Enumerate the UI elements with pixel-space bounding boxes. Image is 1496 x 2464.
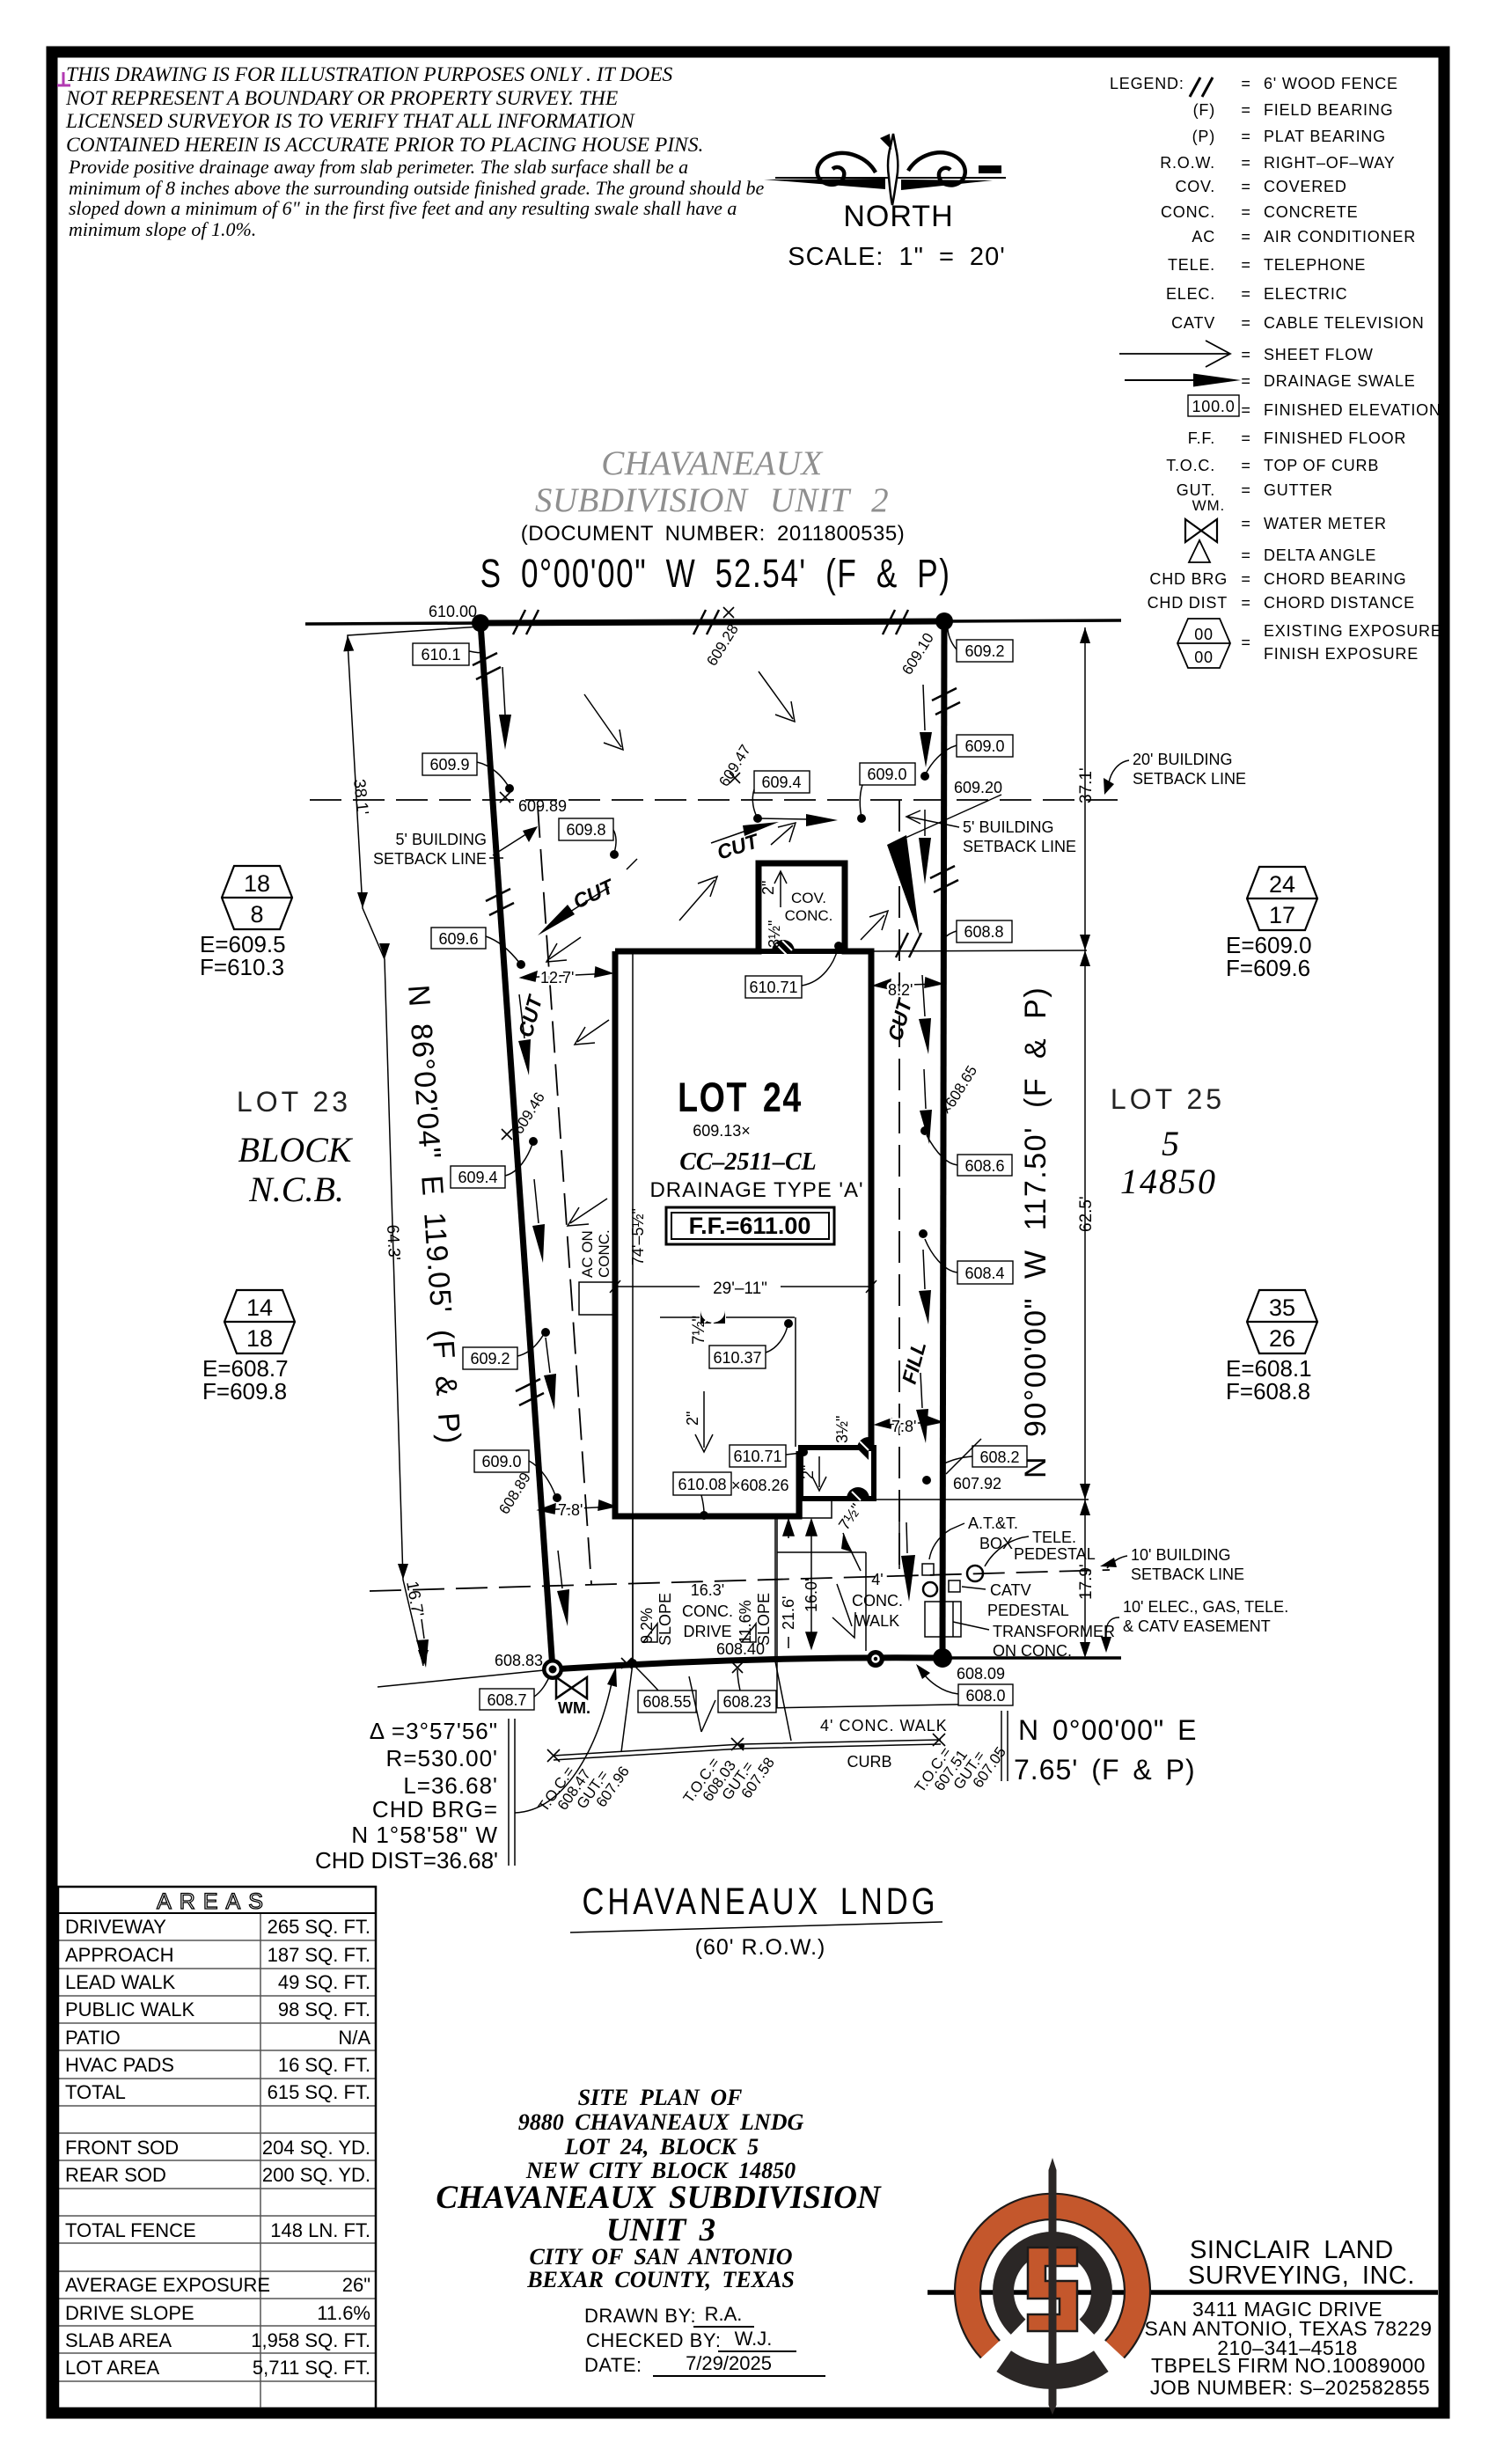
svg-text:BLOCK: BLOCK xyxy=(238,1130,354,1170)
svg-text:SLOPE: SLOPE xyxy=(656,1593,674,1646)
svg-text:2": 2" xyxy=(759,881,777,895)
svg-text:5' BUILDING: 5' BUILDING xyxy=(396,831,487,848)
svg-text:N/A: N/A xyxy=(338,2027,370,2049)
svg-text:L=36.68': L=36.68' xyxy=(403,1772,498,1799)
svg-text:PEDESTAL: PEDESTAL xyxy=(987,1602,1069,1619)
svg-text:PATIO: PATIO xyxy=(65,2027,121,2049)
svg-text:CATV: CATV xyxy=(990,1581,1031,1599)
svg-text:204 SQ. YD.: 204 SQ. YD. xyxy=(262,2137,370,2159)
svg-text:CHD DIST=36.68': CHD DIST=36.68' xyxy=(315,1847,498,1874)
svg-text:LOT 25: LOT 25 xyxy=(1111,1083,1225,1115)
svg-text:14850: 14850 xyxy=(1120,1162,1217,1201)
svg-text:CURB: CURB xyxy=(847,1753,891,1771)
svg-text:609.89: 609.89 xyxy=(518,797,567,815)
svg-text:187 SQ. FT.: 187 SQ. FT. xyxy=(268,1944,370,1966)
svg-text:CHAVANEAUX LNDG: CHAVANEAUX LNDG xyxy=(583,1881,939,1922)
svg-text:608.4: 608.4 xyxy=(964,1265,1004,1282)
svg-text:CHORD DISTANCE: CHORD DISTANCE xyxy=(1264,594,1415,612)
svg-text:TELE.: TELE. xyxy=(1168,256,1215,274)
svg-text:609.13×: 609.13× xyxy=(693,1122,751,1140)
svg-text:R.O.W.: R.O.W. xyxy=(1160,154,1215,172)
svg-text:8: 8 xyxy=(250,901,263,928)
svg-text:=: = xyxy=(1241,515,1250,532)
svg-text:TELEPHONE: TELEPHONE xyxy=(1264,256,1366,274)
svg-text:TBPELS FIRM NO.10089000: TBPELS FIRM NO.10089000 xyxy=(1151,2354,1426,2377)
svg-text:=: = xyxy=(1241,154,1250,172)
svg-text:REAR SOD: REAR SOD xyxy=(65,2164,166,2186)
svg-text:CHD BRG: CHD BRG xyxy=(1149,570,1228,588)
svg-text:=: = xyxy=(1241,546,1250,564)
svg-text:JOB NUMBER: S–202582855: JOB NUMBER: S–202582855 xyxy=(1150,2376,1430,2399)
svg-text:LOT 24, BLOCK 5: LOT 24, BLOCK 5 xyxy=(564,2134,759,2160)
svg-text:HVAC PADS: HVAC PADS xyxy=(65,2054,174,2076)
svg-text:SINCLAIR LAND: SINCLAIR LAND xyxy=(1190,2236,1394,2264)
svg-text:TRANSFORMER: TRANSFORMER xyxy=(993,1623,1115,1640)
svg-text:=: = xyxy=(1241,594,1250,612)
svg-text:N 0°00'00" E: N 0°00'00" E xyxy=(1018,1714,1197,1746)
svg-text:ELECTRIC: ELECTRIC xyxy=(1264,285,1347,303)
svg-text:35: 35 xyxy=(1269,1294,1295,1321)
svg-text:7.8': 7.8' xyxy=(891,1418,916,1435)
svg-text:4' CONC. WALK: 4' CONC. WALK xyxy=(820,1717,948,1734)
svg-text:CHECKED BY:: CHECKED BY: xyxy=(586,2329,721,2351)
svg-text:609.4: 609.4 xyxy=(458,1169,497,1186)
svg-text:609.20: 609.20 xyxy=(954,779,1002,796)
svg-text:LICENSED SURVEYOR IS TO VERIFY: LICENSED SURVEYOR IS TO VERIFY THAT ALL … xyxy=(65,110,635,133)
svg-text:(60' R.O.W.): (60' R.O.W.) xyxy=(695,1935,826,1960)
svg-text:FINISHED FLOOR: FINISHED FLOOR xyxy=(1264,429,1406,447)
svg-text:F=608.8: F=608.8 xyxy=(1226,1378,1310,1404)
svg-text:18: 18 xyxy=(244,870,270,897)
svg-text:609.0: 609.0 xyxy=(867,766,906,783)
svg-text:SUBDIVISION UNIT 2: SUBDIVISION UNIT 2 xyxy=(535,481,889,519)
svg-text:SITE PLAN OF: SITE PLAN OF xyxy=(578,2085,743,2110)
svg-text:F.F.: F.F. xyxy=(1188,429,1215,447)
svg-text:PEDESTAL: PEDESTAL xyxy=(1014,1545,1096,1563)
svg-text:00: 00 xyxy=(1194,649,1214,666)
svg-text:SHEET FLOW: SHEET FLOW xyxy=(1264,346,1374,363)
svg-text:SETBACK LINE: SETBACK LINE xyxy=(1133,770,1246,788)
svg-text:COVERED: COVERED xyxy=(1264,178,1347,195)
svg-text:LEAD WALK: LEAD WALK xyxy=(65,1971,175,1993)
svg-text:608.83: 608.83 xyxy=(495,1652,543,1669)
svg-text:148 LN. FT.: 148 LN. FT. xyxy=(270,2219,370,2241)
svg-text:=: = xyxy=(1241,429,1250,447)
svg-text:TOP OF CURB: TOP OF CURB xyxy=(1264,457,1379,474)
svg-text:CHORD BEARING: CHORD BEARING xyxy=(1264,570,1406,588)
svg-text:=: = xyxy=(1241,481,1250,499)
svg-text:F=610.3: F=610.3 xyxy=(200,954,284,980)
svg-text:AVERAGE EXPOSURE: AVERAGE EXPOSURE xyxy=(65,2274,270,2296)
svg-text:CABLE TELEVISION: CABLE TELEVISION xyxy=(1264,314,1425,332)
svg-text:minimum slope of 1.0%.: minimum slope of 1.0%. xyxy=(69,218,256,240)
svg-text:49 SQ. FT.: 49 SQ. FT. xyxy=(278,1971,370,1993)
svg-text:608.6: 608.6 xyxy=(964,1157,1004,1175)
svg-text:PLAT BEARING: PLAT BEARING xyxy=(1264,128,1386,145)
svg-text:Δ =3°57'56": Δ =3°57'56" xyxy=(370,1718,498,1744)
svg-text:1,958 SQ. FT.: 1,958 SQ. FT. xyxy=(251,2329,370,2351)
svg-text:& CATV EASEMENT: & CATV EASEMENT xyxy=(1123,1617,1271,1635)
svg-text:FINISHED ELEVATION: FINISHED ELEVATION xyxy=(1264,401,1441,419)
svg-text:F.F.=611.00: F.F.=611.00 xyxy=(689,1213,811,1239)
svg-text:LOT 23: LOT 23 xyxy=(237,1086,351,1118)
svg-text:=: = xyxy=(1241,75,1250,92)
svg-text:609.4: 609.4 xyxy=(761,774,801,791)
svg-text:F=609.6: F=609.6 xyxy=(1226,955,1310,981)
svg-text:608.23: 608.23 xyxy=(722,1693,771,1711)
svg-text:R=530.00': R=530.00' xyxy=(386,1745,498,1771)
svg-text:W.J.: W.J. xyxy=(735,2328,773,2350)
svg-text:ELEC.: ELEC. xyxy=(1166,285,1215,303)
svg-text:BEXAR COUNTY, TEXAS: BEXAR COUNTY, TEXAS xyxy=(526,2267,795,2292)
svg-text:64.3': 64.3' xyxy=(383,1224,403,1261)
svg-text:DELTA ANGLE: DELTA ANGLE xyxy=(1264,546,1376,564)
svg-text:26": 26" xyxy=(342,2274,370,2296)
svg-text:7½": 7½" xyxy=(690,1316,708,1345)
svg-text:14: 14 xyxy=(246,1294,273,1321)
svg-text:=: = xyxy=(1241,401,1250,419)
svg-text:A.T.&T.: A.T.&T. xyxy=(968,1514,1018,1532)
svg-text:12.7': 12.7' xyxy=(540,969,574,986)
svg-text:TOTAL: TOTAL xyxy=(65,2081,126,2103)
svg-text:609.6: 609.6 xyxy=(438,930,478,948)
svg-text:GUTTER: GUTTER xyxy=(1264,481,1333,499)
svg-text:CITY OF SAN ANTONIO: CITY OF SAN ANTONIO xyxy=(530,2244,793,2270)
svg-text:610.71: 610.71 xyxy=(749,979,797,996)
svg-text:16 SQ. FT.: 16 SQ. FT. xyxy=(278,2054,370,2076)
svg-text:609.9: 609.9 xyxy=(429,756,469,774)
svg-text:3½": 3½" xyxy=(833,1416,851,1443)
svg-text:GUT.: GUT. xyxy=(1177,481,1215,499)
svg-text:SLAB AREA: SLAB AREA xyxy=(65,2329,172,2351)
svg-text:8.2': 8.2' xyxy=(888,981,913,999)
svg-text:610.08: 610.08 xyxy=(678,1476,726,1493)
svg-text:LOT AREA: LOT AREA xyxy=(65,2357,160,2379)
svg-text:LOT 24: LOT 24 xyxy=(678,1074,803,1121)
svg-text:UNIT 3: UNIT 3 xyxy=(606,2212,715,2248)
svg-text:10' ELEC., GAS, TELE.: 10' ELEC., GAS, TELE. xyxy=(1123,1598,1288,1616)
svg-text:=: = xyxy=(1241,203,1250,221)
svg-text:CONC.: CONC. xyxy=(1161,203,1215,221)
svg-text:DRAWN BY:: DRAWN BY: xyxy=(584,2305,696,2327)
svg-text:=: = xyxy=(1241,256,1250,274)
svg-text:=: = xyxy=(1241,346,1250,363)
svg-text:EXISTING EXPOSURE: EXISTING EXPOSURE xyxy=(1264,622,1442,640)
svg-text:5: 5 xyxy=(1162,1124,1179,1163)
svg-text:610.71: 610.71 xyxy=(733,1448,781,1465)
svg-text:T.O.C.: T.O.C. xyxy=(1166,457,1215,474)
svg-text:ON CONC.: ON CONC. xyxy=(993,1642,1072,1660)
svg-text:26: 26 xyxy=(1269,1325,1295,1352)
svg-text:CC–2511–CL: CC–2511–CL xyxy=(679,1148,817,1176)
svg-text:CHD DIST: CHD DIST xyxy=(1148,594,1228,612)
svg-text:2": 2" xyxy=(684,1412,701,1426)
svg-text:=: = xyxy=(1241,314,1250,332)
svg-text:2": 2" xyxy=(799,1465,817,1479)
svg-text:=: = xyxy=(1241,457,1250,474)
svg-text:16.3': 16.3' xyxy=(691,1581,724,1599)
svg-text:=: = xyxy=(1241,101,1250,119)
svg-text:NOT REPRESENT A BOUNDARY OR PR: NOT REPRESENT A BOUNDARY OR PROPERTY SUR… xyxy=(65,87,618,110)
svg-text:S 0°00'00" W 52.54' (F & P): S 0°00'00" W 52.54' (F & P) xyxy=(480,551,951,596)
svg-text:608.09: 608.09 xyxy=(957,1665,1005,1683)
svg-text:=: = xyxy=(1241,228,1250,246)
svg-text:WALK: WALK xyxy=(855,1612,899,1630)
svg-text:AIR CONDITIONER: AIR CONDITIONER xyxy=(1264,228,1416,246)
svg-text:608.40: 608.40 xyxy=(716,1640,765,1658)
svg-text:CATV: CATV xyxy=(1171,314,1215,332)
svg-text:615 SQ. FT.: 615 SQ. FT. xyxy=(268,2081,370,2103)
svg-text:7.8': 7.8' xyxy=(558,1501,583,1519)
svg-text:3½": 3½" xyxy=(766,920,783,948)
svg-text:37.1': 37.1' xyxy=(1077,767,1096,803)
svg-text:DATE:: DATE: xyxy=(584,2354,642,2376)
svg-text:minimum of 8 inches above the: minimum of 8 inches above the surroundin… xyxy=(69,177,765,199)
svg-text:N.C.B.: N.C.B. xyxy=(248,1170,344,1209)
svg-text:7/29/2025: 7/29/2025 xyxy=(686,2352,772,2374)
svg-text:16.0': 16.0' xyxy=(803,1579,820,1612)
svg-text:610.37: 610.37 xyxy=(713,1349,761,1367)
svg-text:21.6': 21.6' xyxy=(780,1596,797,1630)
svg-text:10' BUILDING: 10' BUILDING xyxy=(1131,1546,1230,1564)
svg-text:62.5': 62.5' xyxy=(1077,1196,1096,1232)
svg-text:R.A.: R.A. xyxy=(705,2303,743,2325)
svg-text:AREAS: AREAS xyxy=(157,1889,271,1914)
svg-text:610.1: 610.1 xyxy=(421,646,460,664)
svg-text:609.2: 609.2 xyxy=(964,642,1004,660)
svg-text:LEGEND:: LEGEND: xyxy=(1110,75,1184,92)
svg-text:DRIVE: DRIVE xyxy=(683,1623,731,1640)
svg-text:N 90°00'00" W 117.50' (F & P): N 90°00'00" W 117.50' (F & P) xyxy=(1019,986,1052,1478)
svg-text:29'–11": 29'–11" xyxy=(713,1280,767,1298)
svg-text:5' BUILDING: 5' BUILDING xyxy=(963,818,1053,836)
svg-text:=: = xyxy=(1241,634,1250,651)
svg-text:18: 18 xyxy=(246,1325,273,1352)
svg-text:FRONT SOD: FRONT SOD xyxy=(65,2137,179,2159)
svg-text:00: 00 xyxy=(1194,626,1214,643)
svg-text:608.7: 608.7 xyxy=(487,1691,526,1709)
svg-text:=: = xyxy=(1241,285,1250,303)
svg-text:7.65' (F & P): 7.65' (F & P) xyxy=(1014,1754,1196,1786)
svg-text:CONC.: CONC. xyxy=(785,907,833,924)
svg-text:CHAVANEAUX SUBDIVISION: CHAVANEAUX SUBDIVISION xyxy=(436,2180,882,2216)
svg-text:608.8: 608.8 xyxy=(964,923,1003,941)
svg-text:COV.: COV. xyxy=(791,890,826,906)
svg-text:sloped down a minimum of 6" in: sloped down a minimum of 6" in the first… xyxy=(69,197,737,219)
svg-text:RIGHT–OF–WAY: RIGHT–OF–WAY xyxy=(1264,154,1396,172)
svg-text:CONC.: CONC. xyxy=(682,1602,733,1620)
svg-text:74'–5½": 74'–5½" xyxy=(629,1208,647,1265)
svg-text:(DOCUMENT NUMBER: 2011800535): (DOCUMENT NUMBER: 2011800535) xyxy=(521,522,905,546)
svg-text:TOTAL FENCE: TOTAL FENCE xyxy=(65,2219,196,2241)
svg-text:=: = xyxy=(1241,178,1250,195)
svg-text:609.0: 609.0 xyxy=(481,1453,521,1470)
svg-text:100.0: 100.0 xyxy=(1192,398,1235,415)
svg-text:17.9': 17.9' xyxy=(1077,1564,1096,1600)
svg-text:NORTH: NORTH xyxy=(843,200,953,233)
svg-text:17: 17 xyxy=(1269,902,1295,928)
svg-text:607.92: 607.92 xyxy=(953,1475,1001,1492)
svg-text:×608.26: ×608.26 xyxy=(731,1477,789,1494)
svg-text:SCALE: 1" = 20': SCALE: 1" = 20' xyxy=(788,243,1005,271)
svg-text:CHAVANEAUX: CHAVANEAUX xyxy=(601,444,824,482)
svg-text:608.55: 608.55 xyxy=(642,1693,691,1711)
svg-text:608.0: 608.0 xyxy=(965,1687,1005,1705)
svg-text:DRAINAGE TYPE 'A': DRAINAGE TYPE 'A' xyxy=(649,1178,863,1202)
svg-text:SETBACK LINE: SETBACK LINE xyxy=(963,838,1076,855)
svg-text:APPROACH: APPROACH xyxy=(65,1944,173,1966)
svg-text:38.1': 38.1' xyxy=(349,778,371,816)
svg-text:FIELD BEARING: FIELD BEARING xyxy=(1264,101,1393,119)
svg-text:SLOPE: SLOPE xyxy=(755,1593,773,1646)
svg-text:20' BUILDING: 20' BUILDING xyxy=(1133,751,1232,768)
svg-text:DRAINAGE SWALE: DRAINAGE SWALE xyxy=(1264,372,1416,390)
svg-text:WM.: WM. xyxy=(1192,497,1225,514)
svg-text:6' WOOD FENCE: 6' WOOD FENCE xyxy=(1264,75,1398,92)
svg-text:DRIVEWAY: DRIVEWAY xyxy=(65,1916,166,1938)
svg-text:11.6%: 11.6% xyxy=(317,2302,370,2324)
svg-text:SETBACK LINE: SETBACK LINE xyxy=(373,850,487,868)
svg-text:24: 24 xyxy=(1269,871,1295,898)
svg-text:PUBLIC WALK: PUBLIC WALK xyxy=(65,1998,194,2020)
svg-text:98 SQ. FT.: 98 SQ. FT. xyxy=(278,1998,370,2020)
svg-text:SETBACK LINE: SETBACK LINE xyxy=(1131,1566,1244,1583)
svg-text:(F): (F) xyxy=(1193,101,1215,119)
svg-text:CONC.: CONC. xyxy=(852,1592,903,1610)
svg-text:N 1°58'58" W: N 1°58'58" W xyxy=(351,1822,498,1848)
svg-text:4': 4' xyxy=(871,1571,883,1588)
svg-text:9880 CHAVANEAUX LNDG: 9880 CHAVANEAUX LNDG xyxy=(518,2109,804,2135)
svg-text:WATER METER: WATER METER xyxy=(1264,515,1387,532)
svg-text:200 SQ. YD.: 200 SQ. YD. xyxy=(262,2164,370,2186)
svg-text:610.00: 610.00 xyxy=(429,603,477,620)
svg-text:AC: AC xyxy=(1192,228,1215,246)
svg-text:609.8: 609.8 xyxy=(566,821,605,839)
svg-text:CHD BRG=: CHD BRG= xyxy=(372,1796,498,1822)
svg-text:(P): (P) xyxy=(1192,128,1215,145)
svg-text:SURVEYING, INC.: SURVEYING, INC. xyxy=(1188,2262,1415,2290)
svg-text:608.2: 608.2 xyxy=(979,1448,1019,1466)
svg-text:=: = xyxy=(1241,128,1250,145)
svg-text:AC ON: AC ON xyxy=(579,1230,596,1278)
svg-text:THIS DRAWING IS FOR ILLUSTRATI: THIS DRAWING IS FOR ILLUSTRATION PURPOSE… xyxy=(66,63,673,86)
svg-text:DRIVE SLOPE: DRIVE SLOPE xyxy=(65,2302,194,2324)
svg-text:CONTAINED HEREIN IS ACCURATE P: CONTAINED HEREIN IS ACCURATE PRIOR TO PL… xyxy=(66,134,703,157)
svg-text:=: = xyxy=(1241,570,1250,588)
svg-text:609.0: 609.0 xyxy=(964,737,1004,755)
svg-text:609.2: 609.2 xyxy=(470,1350,510,1368)
svg-text:5,711 SQ. FT.: 5,711 SQ. FT. xyxy=(253,2357,370,2379)
svg-text:FINISH EXPOSURE: FINISH EXPOSURE xyxy=(1264,645,1419,663)
svg-text:CONCRETE: CONCRETE xyxy=(1264,203,1358,221)
svg-text:TELE.: TELE. xyxy=(1032,1529,1076,1546)
svg-text:265 SQ. FT.: 265 SQ. FT. xyxy=(268,1916,370,1938)
svg-text:F=609.8: F=609.8 xyxy=(202,1378,287,1404)
svg-text:COV.: COV. xyxy=(1175,178,1215,195)
svg-text:Provide positive drainage away: Provide positive drainage away from slab… xyxy=(68,156,688,178)
svg-text:WM.: WM. xyxy=(558,1699,590,1717)
svg-text:CONC.: CONC. xyxy=(596,1229,612,1278)
svg-text:=: = xyxy=(1241,372,1250,390)
